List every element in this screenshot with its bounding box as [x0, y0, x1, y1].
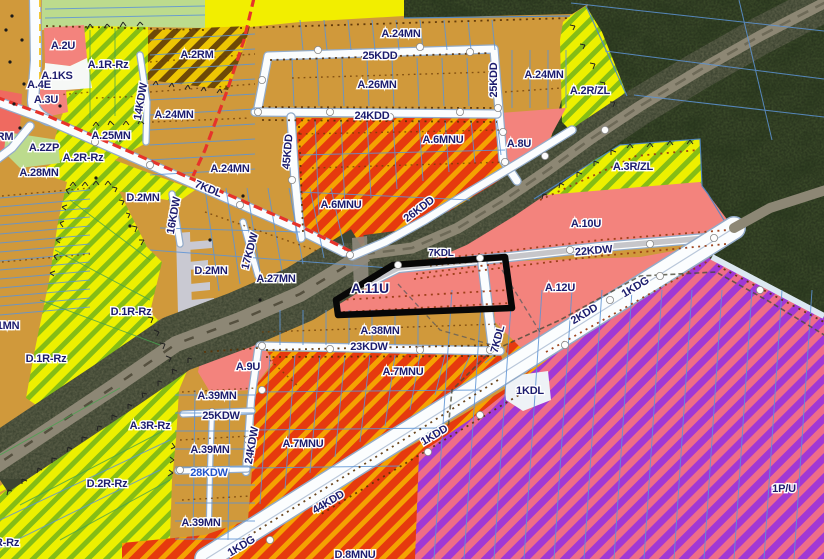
svg-text:A.25MN: A.25MN — [91, 130, 130, 142]
svg-text:A.12U: A.12U — [545, 282, 575, 294]
svg-text:25KDD: 25KDD — [362, 50, 397, 62]
svg-text:A.27MN: A.27MN — [256, 273, 295, 285]
svg-text:D.1R-Rz: D.1R-Rz — [26, 353, 67, 365]
svg-text:1MN: 1MN — [0, 320, 20, 332]
svg-text:1KDL: 1KDL — [516, 385, 544, 397]
svg-text:A.39MN: A.39MN — [181, 517, 220, 529]
svg-text:A.26MN: A.26MN — [357, 79, 396, 91]
svg-text:24KDD: 24KDD — [354, 110, 389, 122]
svg-text:A.24MN: A.24MN — [154, 109, 193, 121]
svg-text:RM: RM — [0, 131, 13, 143]
svg-text:A.11U: A.11U — [351, 280, 389, 296]
svg-text:A.24MN: A.24MN — [210, 163, 249, 175]
svg-text:A.2R-Rz: A.2R-Rz — [63, 152, 104, 164]
svg-text:A.2U: A.2U — [51, 40, 76, 52]
svg-text:7KDL: 7KDL — [428, 248, 453, 259]
svg-text:A.6MNU: A.6MNU — [321, 199, 362, 211]
svg-text:D.1R-Rz: D.1R-Rz — [111, 306, 152, 318]
svg-text:A.3R/ZL: A.3R/ZL — [613, 161, 654, 173]
svg-text:R-Rz: R-Rz — [0, 537, 20, 549]
svg-text:A.10U: A.10U — [571, 218, 601, 230]
svg-text:D.2MN: D.2MN — [126, 192, 159, 204]
svg-text:A.39MN: A.39MN — [190, 444, 229, 456]
svg-text:1P/U: 1P/U — [772, 483, 796, 495]
svg-text:D.2MN: D.2MN — [194, 265, 227, 277]
svg-text:D.8MNU: D.8MNU — [335, 549, 376, 559]
svg-text:A.24MN: A.24MN — [524, 69, 563, 81]
svg-text:A.7MNU: A.7MNU — [383, 366, 424, 378]
svg-text:A.3U: A.3U — [34, 94, 59, 106]
svg-text:A.1R-Rz: A.1R-Rz — [88, 59, 129, 71]
svg-text:28KDW: 28KDW — [190, 467, 228, 479]
svg-text:23KDW: 23KDW — [350, 341, 388, 353]
svg-text:A.2R/ZL: A.2R/ZL — [570, 85, 611, 97]
svg-text:A.2ZP: A.2ZP — [29, 142, 59, 154]
svg-text:25KDD: 25KDD — [488, 62, 500, 97]
svg-text:A.38MN: A.38MN — [360, 325, 399, 337]
svg-text:25KDW: 25KDW — [202, 410, 240, 422]
svg-text:A.8U: A.8U — [507, 138, 532, 150]
svg-text:A.6MNU: A.6MNU — [423, 134, 464, 146]
svg-text:A.28MN: A.28MN — [19, 167, 58, 179]
svg-text:A.3R-Rz: A.3R-Rz — [130, 420, 171, 432]
svg-text:D.2R-Rz: D.2R-Rz — [87, 478, 128, 490]
svg-text:A.9U: A.9U — [236, 361, 261, 373]
svg-text:A.39MN: A.39MN — [197, 390, 236, 402]
svg-text:A.7MNU: A.7MNU — [283, 438, 324, 450]
svg-text:A.4E: A.4E — [27, 79, 51, 91]
svg-text:A.2RM: A.2RM — [180, 49, 213, 61]
svg-text:A.24MN: A.24MN — [381, 28, 420, 40]
